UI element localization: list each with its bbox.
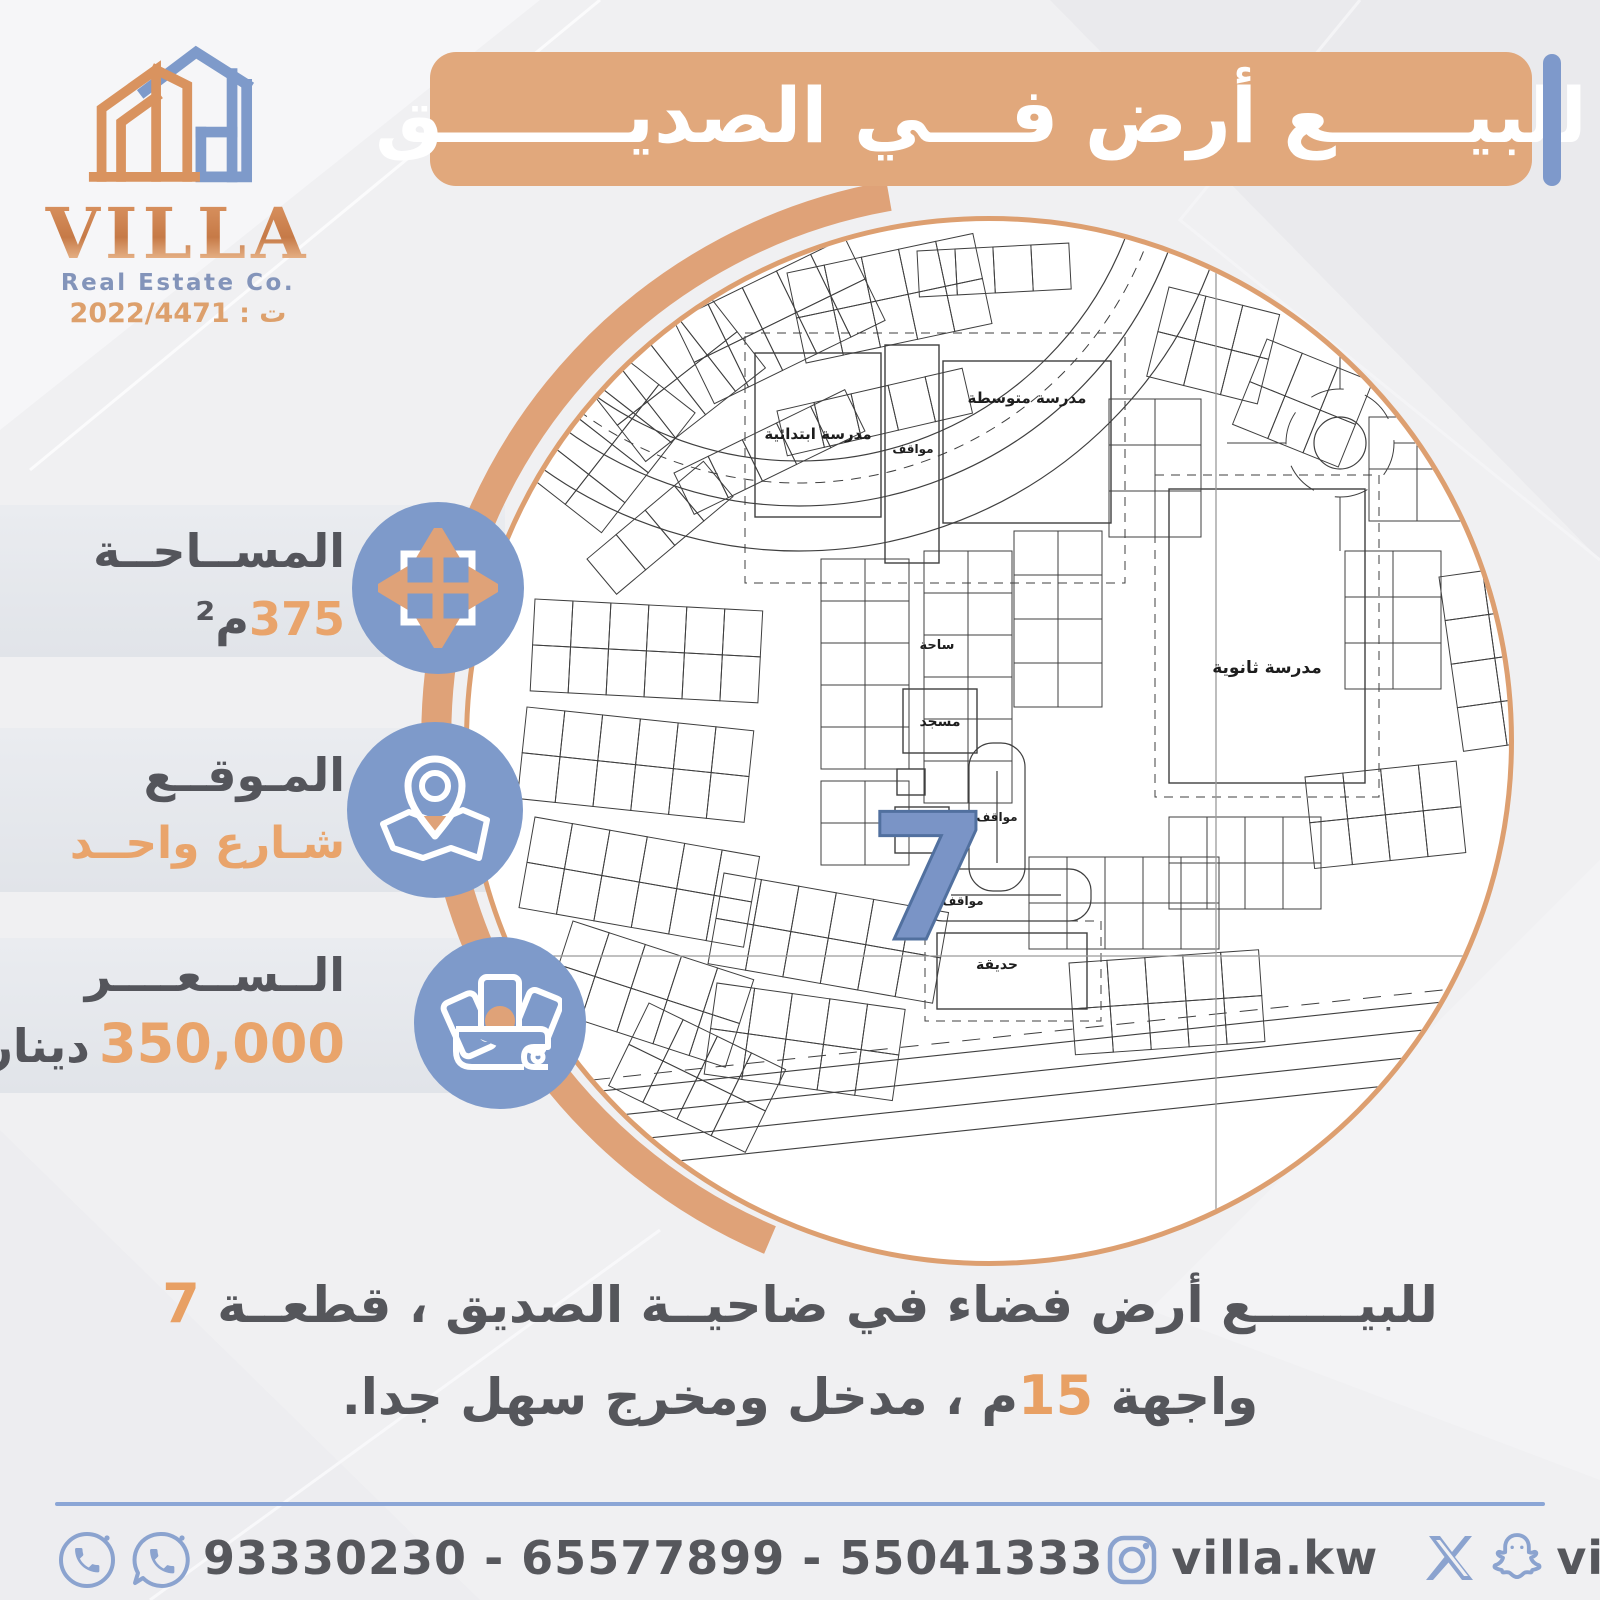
brand-name: VILLA: [28, 202, 328, 266]
area-info: المســاحــة 375م²: [0, 524, 345, 646]
price-label: الــســعــــر: [0, 948, 345, 1002]
location-label: المـوقــع: [0, 748, 345, 802]
header-accent-bar: [1543, 54, 1561, 186]
x-twitter-icon: [1424, 1531, 1478, 1585]
description-line2: واجهة 15م ، مدخل ومخرج سهل جدا.: [80, 1364, 1520, 1427]
map-pin-icon: [373, 748, 497, 872]
money-icon: [438, 961, 562, 1085]
price-icon-circle: [414, 937, 586, 1109]
instagram-handle: villa.kw: [1171, 1531, 1378, 1585]
brand-logo: VILLA Real Estate Co. ت : 2022/4471: [28, 30, 328, 329]
phone-group: 93330230 - 65577899 - 55041333: [55, 1526, 1103, 1590]
whatsapp-icon: [129, 1526, 193, 1590]
cadastral-map: مدرسة ابتدائيةمواقفمدرسة متوسطةمدرسة ثان…: [464, 216, 1514, 1266]
area-value: 375م²: [0, 592, 345, 646]
price-value: 350,000 دينار: [0, 1012, 345, 1075]
map-area-label: مدرسة ثانوية: [1212, 658, 1322, 678]
header-banner: للبيـــــع أرض فـــي الصديـــــــق: [430, 52, 1532, 186]
footer-contacts: 93330230 - 65577899 - 55041333 villa.kw …: [55, 1518, 1547, 1598]
phone-icon: [55, 1526, 119, 1590]
price-info: الــســعــــر 350,000 دينار: [0, 948, 345, 1075]
location-icon-circle: [347, 722, 523, 898]
map-area-label: مدرسة ابتدائية: [764, 425, 871, 443]
social-group: villa.kw villa_kw: [1103, 1529, 1600, 1587]
location-value: شـارع واحــد: [0, 818, 345, 869]
expand-arrows-icon: [378, 528, 498, 648]
location-info: المـوقــع شـارع واحــد: [0, 748, 345, 869]
brand-license-number: ت : 2022/4471: [28, 298, 328, 329]
snapchat-icon: [1488, 1529, 1546, 1587]
footer-divider: [55, 1502, 1545, 1506]
area-icon-circle: [352, 502, 524, 674]
description-line1: للبيــــــع أرض فضاء في ضاحيــة الصديق ،…: [80, 1272, 1520, 1335]
map-area-label: ساحة: [920, 638, 955, 653]
instagram-icon: [1103, 1529, 1161, 1587]
area-label: المســاحــة: [0, 524, 345, 578]
page-title: للبيـــــع أرض فـــي الصديـــــــق: [375, 71, 1587, 168]
map-area-label: مواقف: [892, 442, 933, 457]
map-area-label: مدرسة متوسطة: [968, 389, 1087, 407]
highlighted-plot-number: 7: [868, 778, 990, 981]
map-area-label: مسجد: [919, 714, 960, 730]
buildings-logo-icon: [86, 30, 271, 202]
phone-numbers: 93330230 - 65577899 - 55041333: [203, 1531, 1103, 1585]
social-handle: villa_kw: [1556, 1531, 1600, 1585]
brand-subtitle: Real Estate Co.: [28, 270, 328, 296]
